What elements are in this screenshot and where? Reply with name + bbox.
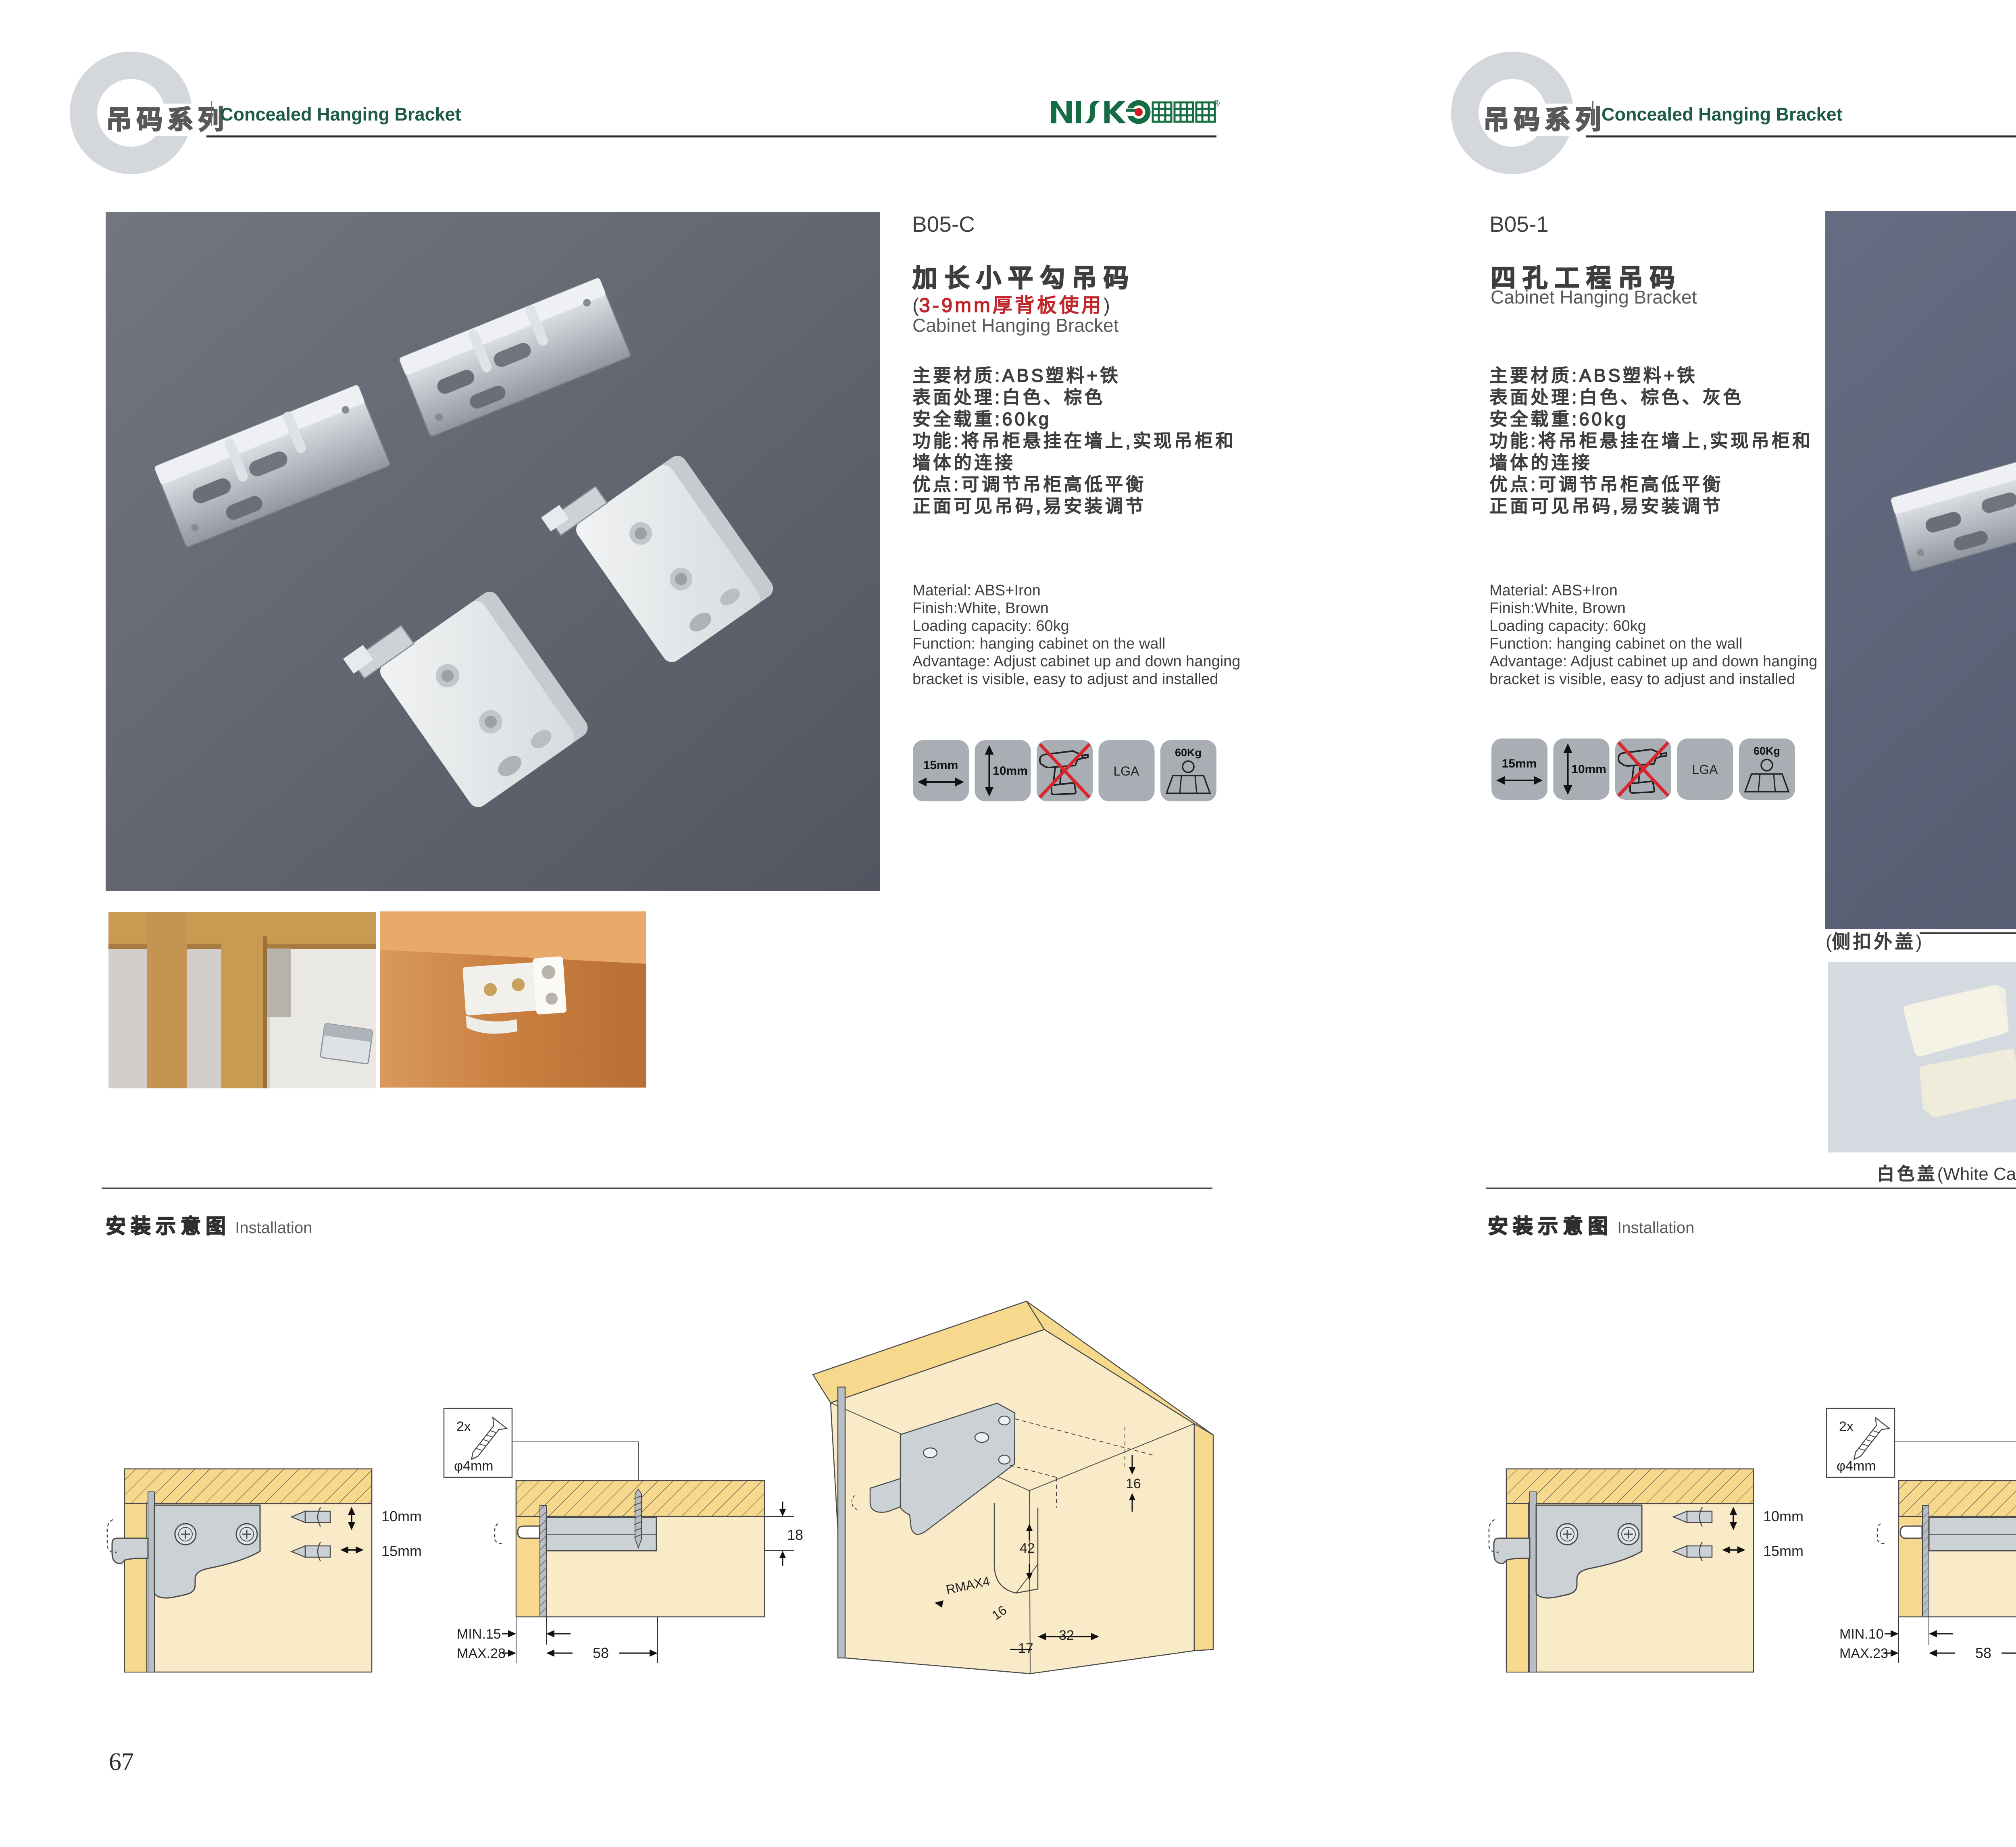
svg-text:60Kg: 60Kg xyxy=(1754,745,1780,757)
svg-text:MIN.15: MIN.15 xyxy=(457,1627,501,1642)
svg-text:15mm: 15mm xyxy=(923,759,958,772)
svg-text:58: 58 xyxy=(1975,1645,1991,1661)
svg-text:MIN.10: MIN.10 xyxy=(1839,1627,1884,1642)
svg-text:LGA: LGA xyxy=(1113,764,1139,778)
svg-text:17: 17 xyxy=(1018,1641,1033,1656)
svg-text:10mm: 10mm xyxy=(1763,1508,1804,1525)
svg-text:2x: 2x xyxy=(456,1419,471,1434)
svg-text:MAX.23: MAX.23 xyxy=(1839,1646,1888,1661)
svg-text:15mm: 15mm xyxy=(1763,1543,1804,1559)
svg-text:60Kg: 60Kg xyxy=(1175,747,1202,759)
svg-text:15mm: 15mm xyxy=(381,1543,422,1559)
svg-text:φ4mm: φ4mm xyxy=(1837,1458,1876,1474)
svg-text:φ4mm: φ4mm xyxy=(454,1458,494,1474)
svg-text:LGA: LGA xyxy=(1692,762,1718,777)
svg-text:2x: 2x xyxy=(1839,1419,1854,1434)
svg-text:16: 16 xyxy=(1126,1476,1141,1491)
svg-text:15mm: 15mm xyxy=(1502,757,1537,770)
svg-text:42: 42 xyxy=(1020,1541,1035,1556)
svg-text:10mm: 10mm xyxy=(381,1508,422,1525)
svg-text:MAX.28: MAX.28 xyxy=(457,1646,506,1661)
svg-text:®: ® xyxy=(1213,98,1220,108)
svg-text:10mm: 10mm xyxy=(993,764,1028,778)
svg-text:58: 58 xyxy=(593,1645,609,1661)
svg-text:32: 32 xyxy=(1059,1628,1074,1643)
svg-text:10mm: 10mm xyxy=(1571,763,1606,776)
